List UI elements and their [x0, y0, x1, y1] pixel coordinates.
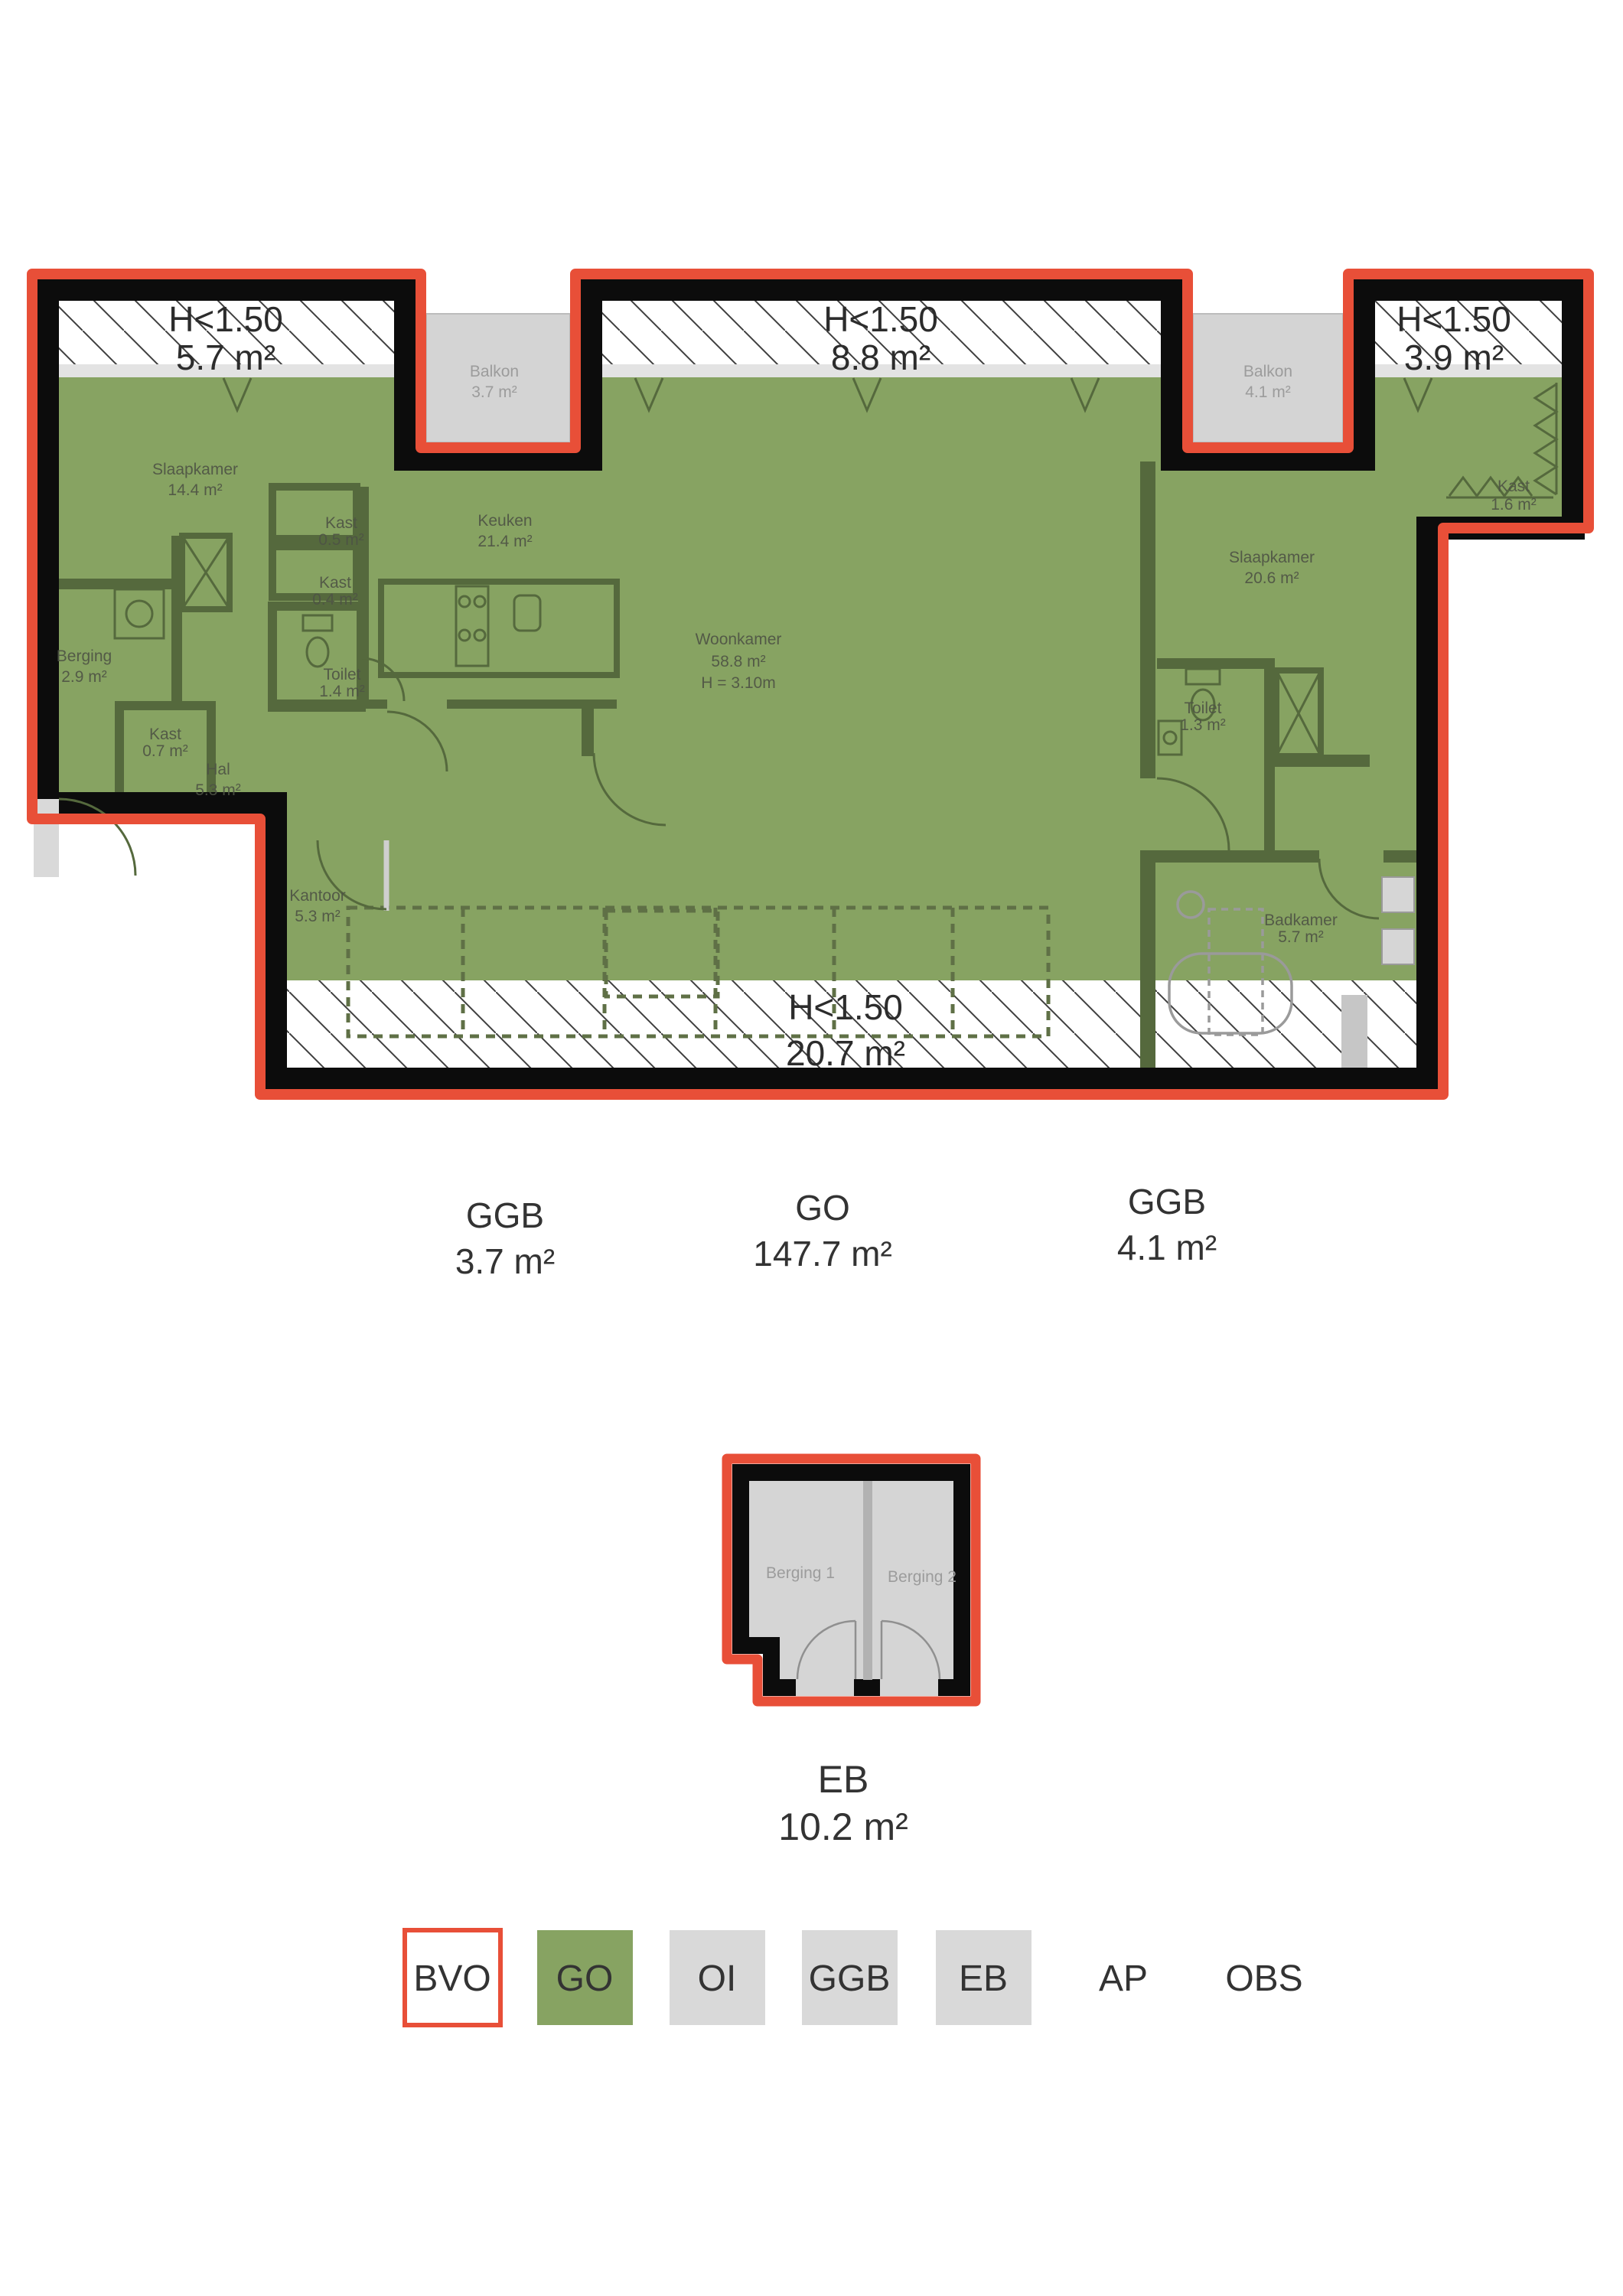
total-code: GGB	[466, 1195, 544, 1235]
room-label-kast-16: Kast 1.6 m²	[1491, 478, 1537, 514]
low-height-middle-title: H<1.50	[823, 299, 938, 339]
room-area: 5.7 m²	[1278, 928, 1324, 946]
storage-door-gap-2	[880, 1679, 938, 1696]
room-area: 0.5 m²	[318, 531, 364, 549]
balcony-1-name: Balkon	[470, 363, 519, 380]
storage-divider	[863, 1481, 872, 1680]
legend-label-ggb: GGB	[809, 1958, 891, 1999]
room-name: Berging	[57, 647, 112, 665]
room-name: Kast	[319, 574, 351, 592]
storage-room-2-label: Berging 2	[888, 1568, 957, 1586]
room-label-kast-05: Kast 0.5 m²	[318, 514, 364, 549]
badkamer-cabinet-1	[1382, 877, 1414, 912]
room-area: 5.3 m²	[195, 781, 241, 799]
room-area: 21.4 m²	[477, 533, 532, 550]
low-height-bottom-area: 20.7 m²	[786, 1033, 905, 1073]
low-height-bottom-title: H<1.50	[788, 987, 903, 1027]
wall-badkamer-top-a	[1148, 850, 1319, 863]
hatch-bottom-pillar	[1341, 995, 1367, 1068]
room-area: 1.3 m²	[1180, 716, 1226, 734]
wall-toilet2-right	[1264, 658, 1275, 851]
main-floorplan: H<1.50 5.7 m² H<1.50 8.8 m² H<1.50 3.9 m…	[32, 274, 1593, 1281]
storage-door-gap-1	[796, 1679, 854, 1696]
legend-label-obs: OBS	[1225, 1958, 1302, 1999]
room-name: Toilet	[323, 666, 360, 683]
legend: BVO GO OI GGB EB AP OBS	[405, 1930, 1303, 2025]
area-total-ggb-right: GGB 4.1 m²	[1117, 1182, 1217, 1267]
total-area: 3.7 m²	[455, 1241, 555, 1281]
room-name: Kantoor	[289, 887, 346, 905]
wall-slaapkamer-berging	[47, 579, 171, 589]
room-label-kast-04: Kast 0.4 m²	[312, 574, 358, 608]
total-area: 147.7 m²	[753, 1234, 892, 1274]
room-area: 0.7 m²	[142, 742, 188, 760]
badkamer-cabinet-2	[1382, 929, 1414, 964]
low-height-right-area: 3.9 m²	[1404, 338, 1504, 377]
wall-hal-top-a	[272, 700, 387, 709]
floorplan-canvas: H<1.50 5.7 m² H<1.50 8.8 m² H<1.50 3.9 m…	[0, 0, 1623, 2296]
wall-kast07-top	[115, 701, 216, 710]
room-name: Slaapkamer	[152, 461, 238, 478]
area-total-ggb-left: GGB 3.7 m²	[455, 1195, 555, 1281]
balcony-1-area-text: 3.7 m²	[471, 383, 517, 401]
room-area: 58.8 m²	[711, 653, 765, 670]
room-area: 5.3 m²	[295, 908, 341, 925]
room-name: Slaapkamer	[1229, 549, 1315, 566]
room-area: 0.4 m²	[312, 591, 358, 608]
legend-label-ap: AP	[1099, 1958, 1148, 1999]
storage-total-code: EB	[818, 1758, 869, 1801]
low-height-label-left: H<1.50 5.7 m²	[168, 299, 283, 377]
room-area: 20.6 m²	[1244, 569, 1299, 587]
room-name: Kast	[149, 726, 181, 743]
low-height-left-title: H<1.50	[168, 299, 283, 339]
storage-total-area: 10.2 m²	[778, 1805, 908, 1848]
legend-label-bvo: BVO	[413, 1958, 490, 1999]
total-area: 4.1 m²	[1117, 1228, 1217, 1267]
room-name: Hal	[206, 761, 230, 778]
room-name: Keuken	[477, 512, 532, 530]
room-area: 1.4 m²	[319, 683, 365, 700]
storage-total-label: EB 10.2 m²	[778, 1758, 908, 1848]
area-total-go: GO 147.7 m²	[753, 1188, 892, 1274]
low-height-left-area: 5.7 m²	[176, 338, 275, 377]
low-height-label-right: H<1.50 3.9 m²	[1396, 299, 1511, 377]
room-area: 1.6 m²	[1491, 496, 1537, 514]
legend-label-oi: OI	[698, 1958, 737, 1999]
wall-hal-top-b	[447, 700, 617, 709]
room-label-kast-07: Kast 0.7 m²	[142, 726, 188, 760]
low-height-right-title: H<1.50	[1396, 299, 1511, 339]
legend-label-go: GO	[556, 1958, 614, 1999]
room-label-toilet-1: Toilet 1.4 m²	[319, 666, 365, 700]
total-code: GO	[795, 1188, 850, 1228]
room-name: Kast	[1498, 478, 1530, 495]
legend-label-eb: EB	[959, 1958, 1008, 1999]
storage-room-1-label: Berging 1	[766, 1564, 835, 1582]
wall-hal-woonkamer	[582, 709, 594, 756]
room-height-note: H = 3.10m	[701, 674, 775, 692]
wall-kast07-left	[115, 701, 124, 799]
low-height-label-middle: H<1.50 8.8 m²	[823, 299, 938, 377]
balcony-2-name: Balkon	[1243, 363, 1292, 380]
low-height-middle-area: 8.8 m²	[831, 338, 930, 377]
room-name: Woonkamer	[696, 631, 782, 648]
wall-woonkamer-right-top	[1140, 461, 1155, 778]
room-area: 2.9 m²	[61, 668, 107, 686]
wall-toilet2-top	[1157, 658, 1266, 669]
room-name: Kast	[325, 514, 357, 532]
room-name: Toilet	[1184, 700, 1221, 717]
storage-floorplan: Berging 1 Berging 2 EB 10.2 m²	[727, 1459, 976, 1848]
room-name: Badkamer	[1264, 912, 1338, 929]
wall-woonkamer-right-bottom	[1140, 850, 1155, 1080]
room-area: 14.4 m²	[168, 481, 222, 499]
total-code: GGB	[1128, 1182, 1206, 1221]
room-label-toilet-2: Toilet 1.3 m²	[1180, 700, 1226, 734]
balcony-2-area-text: 4.1 m²	[1245, 383, 1291, 401]
